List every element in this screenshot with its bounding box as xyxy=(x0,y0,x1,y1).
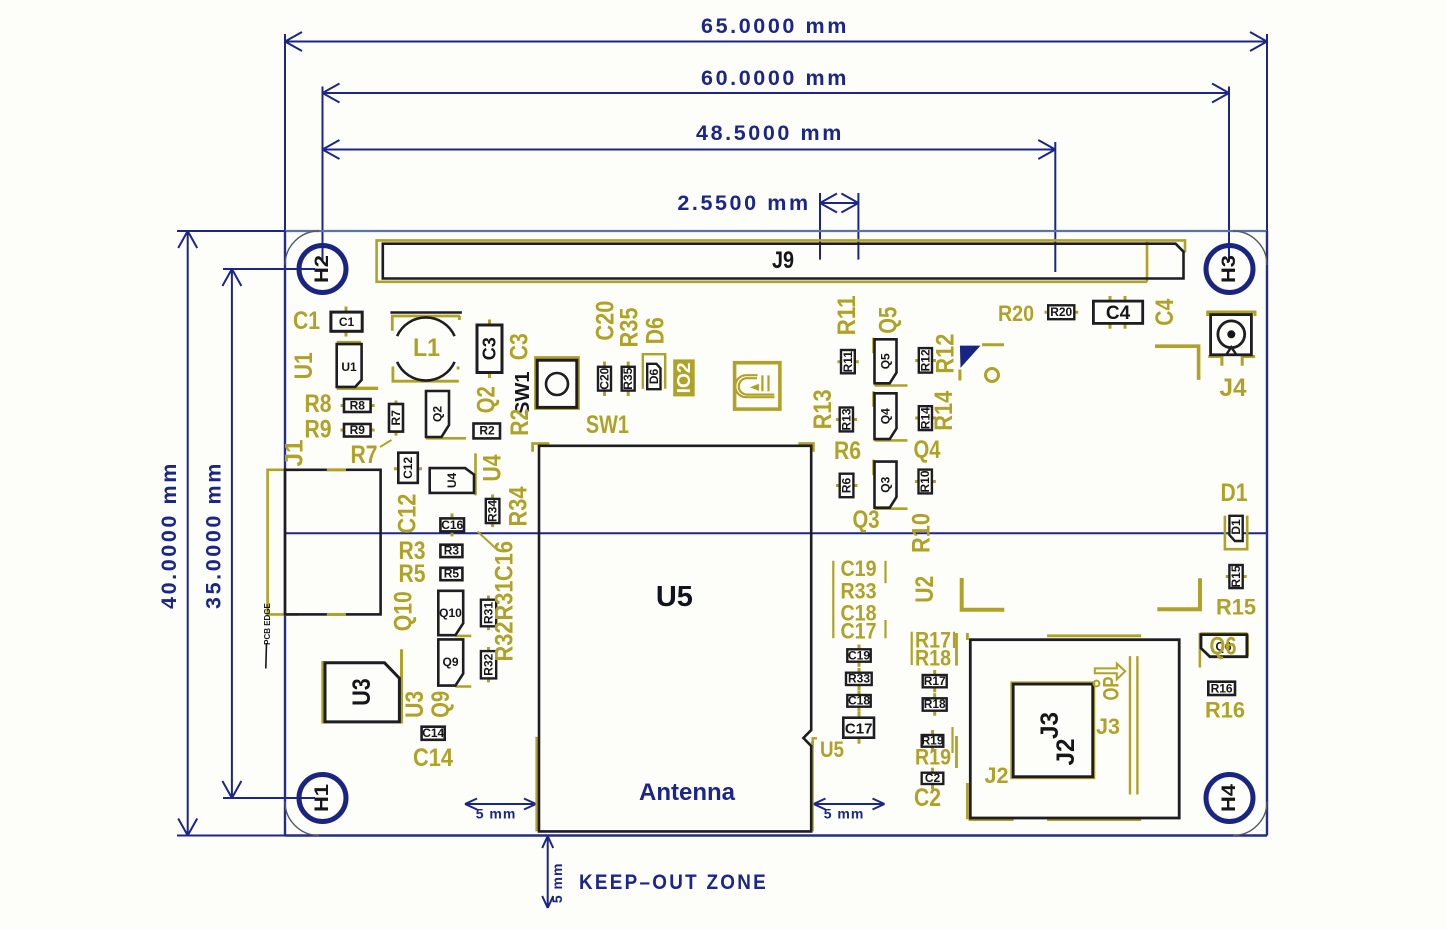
svg-text:R5: R5 xyxy=(444,567,460,581)
svg-text:J2: J2 xyxy=(1052,739,1080,766)
svg-text:R20: R20 xyxy=(1050,305,1072,319)
svg-text:C17: C17 xyxy=(845,720,873,737)
svg-text:KEEP–OUT ZONE: KEEP–OUT ZONE xyxy=(579,870,768,894)
svg-text:IO2: IO2 xyxy=(674,362,694,393)
svg-text:R35: R35 xyxy=(616,307,644,347)
svg-text:C3: C3 xyxy=(505,333,533,360)
svg-text:D1: D1 xyxy=(1229,519,1243,535)
svg-text:R33: R33 xyxy=(848,672,870,686)
svg-text:Q3: Q3 xyxy=(853,506,880,534)
svg-text:R2: R2 xyxy=(506,409,534,436)
svg-text:R5: R5 xyxy=(399,560,426,588)
svg-text:5 mm: 5 mm xyxy=(824,806,865,822)
svg-text:Q6: Q6 xyxy=(1210,633,1237,661)
svg-text:U5: U5 xyxy=(656,581,693,613)
svg-text:C2: C2 xyxy=(925,771,941,785)
svg-text:OP: OP xyxy=(1099,677,1124,701)
svg-text:60.0000 mm: 60.0000 mm xyxy=(701,66,849,90)
svg-text:R16: R16 xyxy=(1211,681,1233,695)
svg-text:U5: U5 xyxy=(820,737,844,762)
svg-text:U2: U2 xyxy=(911,576,939,603)
svg-text:R32: R32 xyxy=(490,622,518,662)
svg-text:R7: R7 xyxy=(351,441,378,469)
svg-text:2.5500 mm: 2.5500 mm xyxy=(677,191,810,215)
svg-text:R20: R20 xyxy=(998,301,1034,326)
svg-text:C19: C19 xyxy=(848,648,870,662)
svg-text:C4: C4 xyxy=(1151,299,1179,326)
svg-text:H3: H3 xyxy=(1219,255,1240,283)
svg-text:Q3: Q3 xyxy=(879,476,893,492)
svg-text:R9: R9 xyxy=(350,423,366,437)
svg-text:D6: D6 xyxy=(647,369,661,385)
svg-text:U4: U4 xyxy=(479,454,507,481)
svg-text:R3: R3 xyxy=(444,544,460,558)
svg-text:65.0000 mm: 65.0000 mm xyxy=(701,14,849,38)
svg-text:R18: R18 xyxy=(915,646,951,671)
svg-text:H1: H1 xyxy=(312,784,333,812)
svg-text:U3: U3 xyxy=(348,678,376,706)
svg-text:D6: D6 xyxy=(641,317,669,344)
svg-text:R13: R13 xyxy=(839,408,853,430)
svg-text:PCB EDGE: PCB EDGE xyxy=(263,602,272,644)
svg-text:L1: L1 xyxy=(413,334,440,362)
svg-text:R6: R6 xyxy=(840,478,854,494)
svg-text:Q4: Q4 xyxy=(879,408,893,424)
svg-text:Q2: Q2 xyxy=(431,406,445,422)
svg-text:5 mm: 5 mm xyxy=(476,806,517,822)
svg-text:R31: R31 xyxy=(490,580,518,620)
svg-text:48.5000 mm: 48.5000 mm xyxy=(696,121,844,145)
svg-text:R9: R9 xyxy=(305,416,332,444)
svg-text:5 mm: 5 mm xyxy=(549,863,565,904)
svg-text:C14: C14 xyxy=(413,744,453,772)
svg-text:R10: R10 xyxy=(918,470,932,492)
svg-text:R11: R11 xyxy=(841,351,855,373)
svg-text:R16: R16 xyxy=(1205,698,1245,723)
svg-text:Q4: Q4 xyxy=(914,436,941,464)
svg-text:C4: C4 xyxy=(1106,303,1131,324)
svg-text:R35: R35 xyxy=(621,367,635,389)
svg-text:R15: R15 xyxy=(1229,565,1243,587)
svg-text:R8: R8 xyxy=(305,390,332,418)
svg-text:Q5: Q5 xyxy=(879,353,893,369)
svg-text:J3: J3 xyxy=(1096,714,1120,739)
svg-text:C2: C2 xyxy=(914,784,941,812)
svg-text:R10: R10 xyxy=(908,513,936,553)
svg-text:U1: U1 xyxy=(290,352,318,379)
svg-text:R15: R15 xyxy=(1216,595,1256,620)
svg-text:C12: C12 xyxy=(401,457,415,479)
svg-text:R12: R12 xyxy=(918,349,932,371)
svg-text:C19: C19 xyxy=(841,556,877,581)
svg-text:J9: J9 xyxy=(772,247,794,274)
svg-text:J3: J3 xyxy=(1036,712,1064,739)
svg-text:Q9: Q9 xyxy=(442,655,458,669)
svg-text:40.0000 mm: 40.0000 mm xyxy=(157,461,181,609)
svg-text:Q10: Q10 xyxy=(390,591,418,631)
svg-text:C1: C1 xyxy=(339,315,355,329)
svg-text:H2: H2 xyxy=(312,255,333,283)
svg-text:R7: R7 xyxy=(389,410,403,426)
svg-text:R6: R6 xyxy=(834,437,861,465)
svg-text:C14: C14 xyxy=(422,726,444,740)
svg-text:C3: C3 xyxy=(480,337,500,360)
svg-text:H4: H4 xyxy=(1219,784,1240,812)
svg-text:R19: R19 xyxy=(915,745,951,770)
svg-text:U1: U1 xyxy=(341,360,357,374)
svg-text:U4: U4 xyxy=(445,473,459,489)
svg-text:C17: C17 xyxy=(841,619,877,644)
svg-text:SW1: SW1 xyxy=(586,411,629,439)
svg-text:SW1: SW1 xyxy=(512,372,534,415)
svg-text:Q9: Q9 xyxy=(427,691,455,718)
svg-text:R34: R34 xyxy=(504,486,532,526)
svg-text:R2: R2 xyxy=(479,424,495,438)
svg-text:R13: R13 xyxy=(809,389,837,429)
svg-text:R8: R8 xyxy=(350,399,366,413)
svg-text:R12: R12 xyxy=(932,334,960,374)
svg-text:Q5: Q5 xyxy=(874,307,902,334)
svg-text:U3: U3 xyxy=(401,691,429,718)
svg-text:R14: R14 xyxy=(930,391,958,431)
svg-text:R18: R18 xyxy=(924,697,946,711)
svg-text:Antenna: Antenna xyxy=(639,779,736,806)
svg-text:D1: D1 xyxy=(1221,479,1248,507)
svg-text:C18: C18 xyxy=(848,694,870,708)
svg-text:R34: R34 xyxy=(486,500,500,522)
svg-text:C20: C20 xyxy=(598,367,612,389)
svg-text:C12: C12 xyxy=(393,494,421,534)
svg-text:C16: C16 xyxy=(441,518,463,532)
svg-text:J2: J2 xyxy=(985,763,1009,788)
svg-text:C1: C1 xyxy=(293,307,320,335)
svg-text:35.0000 mm: 35.0000 mm xyxy=(202,461,226,609)
svg-text:R11: R11 xyxy=(833,295,861,335)
svg-text:Q10: Q10 xyxy=(439,606,462,620)
svg-text:Q2: Q2 xyxy=(473,386,501,413)
svg-text:J4: J4 xyxy=(1220,374,1247,402)
svg-text:R17: R17 xyxy=(924,674,946,688)
